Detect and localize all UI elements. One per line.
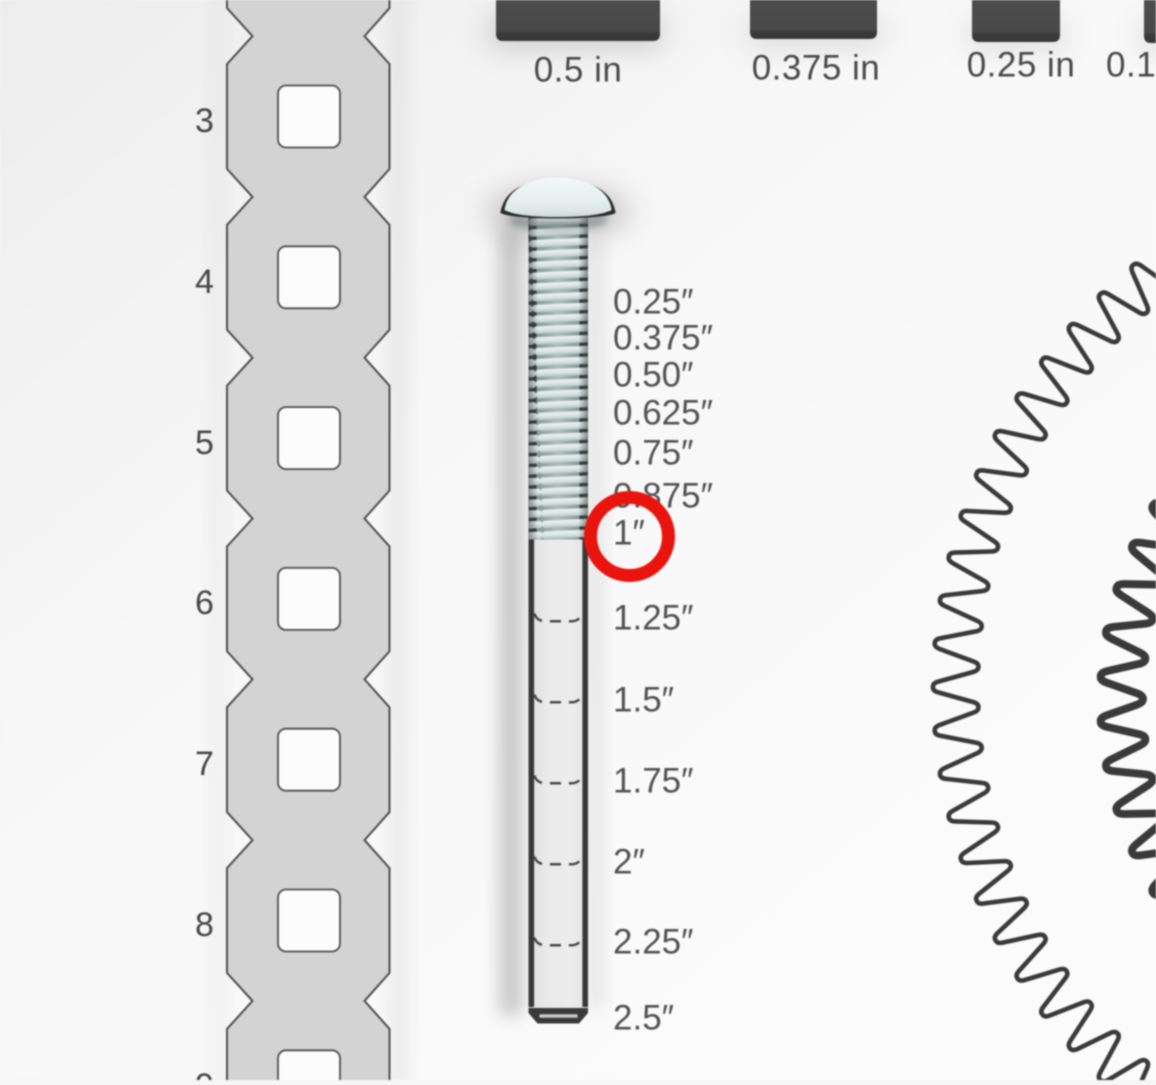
svg-text:0.375 in: 0.375 in	[752, 49, 881, 88]
svg-text:0.50″: 0.50″	[613, 356, 694, 395]
svg-text:0.25″: 0.25″	[613, 283, 694, 322]
svg-text:1″: 1″	[613, 514, 645, 553]
svg-text:2.5″: 2.5″	[613, 999, 674, 1038]
svg-text:6: 6	[195, 584, 214, 622]
svg-text:0.375″: 0.375″	[613, 319, 713, 358]
svg-text:1.5″: 1.5″	[613, 681, 674, 720]
svg-text:1.25″: 1.25″	[613, 599, 694, 638]
svg-text:0.625″: 0.625″	[613, 394, 713, 433]
svg-text:2″: 2″	[613, 843, 645, 882]
svg-text:2.25″: 2.25″	[613, 923, 694, 962]
svg-text:1.75″: 1.75″	[613, 762, 694, 801]
svg-text:3: 3	[195, 102, 214, 140]
svg-text:4: 4	[195, 263, 214, 301]
svg-text:7: 7	[195, 745, 214, 783]
svg-text:0.125 in: 0.125 in	[1106, 46, 1156, 85]
svg-text:5: 5	[195, 424, 214, 462]
svg-text:8: 8	[195, 906, 214, 944]
svg-text:9: 9	[195, 1067, 214, 1080]
svg-text:0.5 in: 0.5 in	[534, 51, 623, 90]
svg-text:0.75″: 0.75″	[613, 434, 694, 473]
svg-text:0.25 in: 0.25 in	[967, 46, 1076, 85]
